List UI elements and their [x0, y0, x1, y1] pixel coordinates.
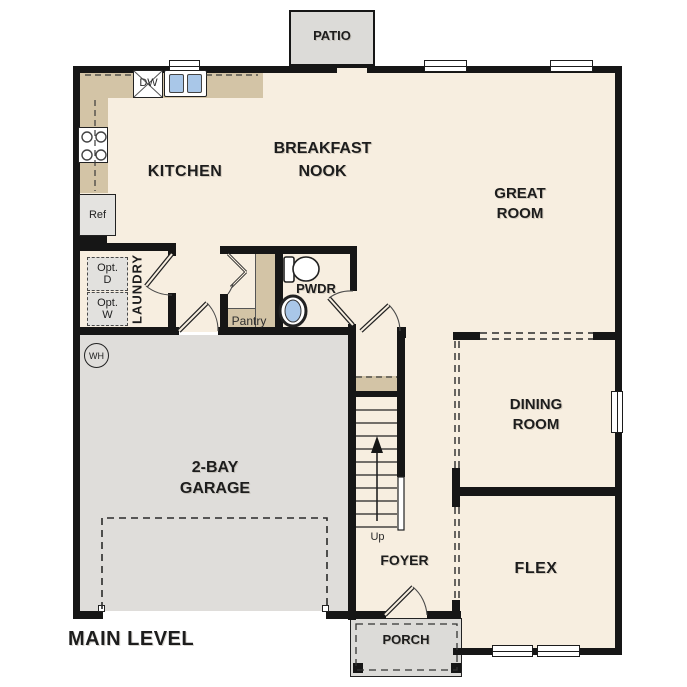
water-heater-circle: WH [84, 343, 109, 368]
room-label-porch: PORCH [356, 632, 456, 647]
wall-dining-top-stub-left [453, 332, 480, 340]
stair-landing-band [356, 376, 397, 392]
optional-dryer-line1: Opt. [97, 262, 118, 274]
wall-pantry-left-a [220, 246, 228, 254]
room-label-breakfast-nook: BREAKFAST NOOK [250, 137, 395, 183]
stairs-up-label: Up [365, 531, 390, 543]
optional-washer-line2: W [102, 309, 112, 321]
floor-title: MAIN LEVEL [68, 628, 288, 651]
wall-garage-right-spine [348, 324, 356, 620]
room-label-flex: FLEX [500, 560, 572, 578]
breakfast-nook-line1: BREAKFAST [250, 137, 395, 160]
wall-stair-right [397, 330, 405, 477]
wall-foyer-junction-stub [452, 468, 460, 507]
optional-dryer-box: Opt. D [87, 257, 128, 291]
wall-pwdr-right [350, 246, 357, 291]
garage-line1: 2-BAY [155, 457, 275, 478]
wall-dining-flex-divider [453, 487, 615, 496]
garage-door-jamb-left [98, 605, 105, 612]
room-label-dining-room: DINING ROOM [486, 395, 586, 435]
window-flex-1 [492, 645, 533, 657]
optional-dryer-line2: D [104, 274, 112, 286]
water-heater-label: WH [89, 351, 104, 361]
refrigerator-label: Ref [89, 209, 106, 221]
window-great-room-1 [424, 60, 467, 72]
window-flex-2 [537, 645, 580, 657]
refrigerator-box: Ref [79, 194, 116, 236]
window-great-room-2 [550, 60, 593, 72]
patio-slider-door [337, 68, 367, 73]
great-room-line1: GREAT [470, 184, 570, 204]
optional-washer-line1: Opt. [97, 297, 118, 309]
room-label-great-room: GREAT ROOM [470, 184, 570, 224]
sink-basin-right [187, 74, 202, 93]
wall-exterior-bottom-1 [73, 611, 103, 619]
room-label-pantry: Pantry [225, 314, 273, 328]
dining-room-line1: DINING [486, 395, 586, 415]
wall-pantry-pwdr-top [220, 246, 357, 254]
wall-dining-top-stub-right [593, 332, 615, 340]
room-label-pwdr: PWDR [292, 281, 340, 296]
room-label-kitchen: KITCHEN [135, 163, 235, 181]
wall-flex-left-stub [452, 600, 460, 618]
wall-laundry-top [73, 243, 176, 251]
wall-pantry-pwdr-divider [275, 252, 283, 335]
room-label-foyer: FOYER [372, 552, 437, 568]
great-room-line2: ROOM [470, 204, 570, 224]
wall-exterior-bottom-2 [326, 611, 386, 619]
room-label-laundry: LAUNDRY [127, 250, 147, 328]
dining-room-line2: ROOM [486, 415, 586, 435]
dishwasher-label: DW [136, 77, 161, 89]
wall-stair-closet-bottom [356, 391, 397, 397]
wall-garage-top-a [73, 327, 179, 335]
sink-basin-left [169, 74, 184, 93]
wall-garage-top-b [218, 327, 356, 335]
breakfast-nook-line2: NOOK [250, 160, 395, 183]
garage-door-jamb-right [322, 605, 329, 612]
window-dining-room [611, 391, 623, 433]
porch-post-right [451, 663, 461, 673]
optional-washer-box: Opt. W [87, 292, 128, 326]
garage-line2: GARAGE [155, 478, 275, 499]
floor-plan: Ref Opt. D Opt. W WH [0, 0, 687, 687]
room-label-garage: 2-BAY GARAGE [155, 457, 275, 499]
wall-exterior-right [615, 66, 622, 655]
porch-post-left [353, 663, 363, 673]
porch-slab [350, 618, 462, 677]
stove-box [78, 127, 108, 163]
wall-laundry-right-a [168, 243, 176, 256]
room-label-patio: PATIO [289, 28, 375, 43]
